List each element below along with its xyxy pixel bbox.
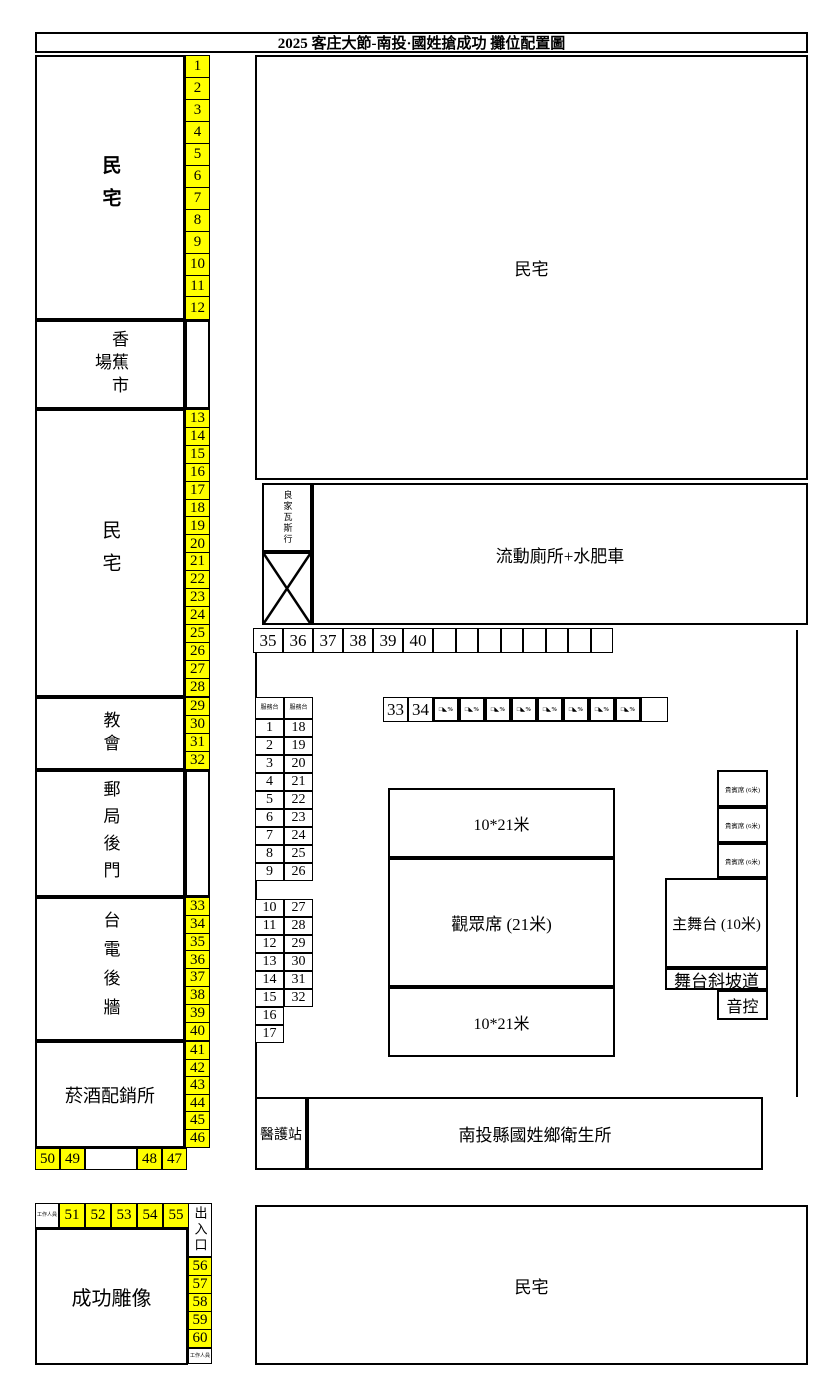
health-center: 南投縣國姓鄉衛生所 bbox=[307, 1097, 763, 1170]
booth-cell: 12 bbox=[185, 296, 210, 319]
area-banana-market-label: 香蕉市場 bbox=[93, 322, 127, 407]
booth-cell: 16 bbox=[185, 463, 210, 482]
stamped-cell: □◣% bbox=[563, 697, 589, 722]
service-cell: 2 bbox=[255, 737, 284, 755]
service-cell: 16 bbox=[255, 1007, 284, 1025]
booth-cell: 36 bbox=[185, 950, 210, 969]
area-gas-shop-label: 良家瓦斯行 bbox=[283, 490, 292, 545]
service-cell: 21 bbox=[284, 773, 313, 791]
service-cell: 17 bbox=[255, 1025, 284, 1043]
stamped-cell: □◣% bbox=[511, 697, 537, 722]
area-chenggong-statue: 成功雕像 bbox=[35, 1228, 188, 1365]
area-mobile-toilets: 流動廁所+水肥車 bbox=[312, 483, 808, 625]
booth-cell: 41 bbox=[185, 1041, 210, 1060]
booth-cell: 49 bbox=[60, 1148, 85, 1170]
service-cell: 27 bbox=[284, 899, 313, 917]
empty-cell bbox=[641, 697, 668, 722]
booth-cell: 34 bbox=[185, 915, 210, 934]
crossed-out-area bbox=[262, 552, 312, 625]
service-desk-row: 7 24 bbox=[255, 827, 315, 845]
booth-cell: 34 bbox=[408, 697, 433, 722]
booth-strip-41-46: 414243444546 bbox=[185, 1041, 210, 1148]
empty-cell bbox=[433, 628, 456, 653]
empty-strip-banana bbox=[185, 320, 210, 409]
empty-strip-post-office bbox=[185, 770, 210, 897]
booth-cell: 53 bbox=[111, 1203, 137, 1228]
service-cell: 14 bbox=[255, 971, 284, 989]
service-cell: 5 bbox=[255, 791, 284, 809]
service-cell: 26 bbox=[284, 863, 313, 881]
booth-cell: 19 bbox=[185, 516, 210, 535]
booth-cell: 27 bbox=[185, 660, 210, 679]
street-booth-row: 353637383940 bbox=[253, 628, 613, 653]
service-cell: 13 bbox=[255, 953, 284, 971]
road-edge-right bbox=[796, 630, 798, 1097]
service-cell: 6 bbox=[255, 809, 284, 827]
empty-cell bbox=[501, 628, 524, 653]
booth-cell: 35 bbox=[185, 933, 210, 952]
booth-cell: 59 bbox=[188, 1311, 212, 1330]
service-cell: 23 bbox=[284, 809, 313, 827]
vip-seat-3: 貴賓席 (6米) bbox=[717, 843, 768, 878]
booth-strip-33-40: 3334353637383940 bbox=[185, 897, 210, 1041]
service-cell: 31 bbox=[284, 971, 313, 989]
service-cell: 30 bbox=[284, 953, 313, 971]
stamped-cell: □◣% bbox=[537, 697, 563, 722]
service-desk-block-b: 10 27 11 28 12 29 13 30 bbox=[255, 899, 315, 1007]
service-desk-row: 1 18 bbox=[255, 719, 315, 737]
service-desk-block-singles: 16 17 bbox=[255, 1007, 315, 1043]
booth-cell: 40 bbox=[185, 1022, 210, 1041]
booth-cell: 39 bbox=[185, 1004, 210, 1023]
booth-cell: 11 bbox=[185, 275, 210, 298]
medical-station: 醫護站 bbox=[255, 1097, 307, 1170]
service-desk-row: 10 27 bbox=[255, 899, 315, 917]
service-cell: 12 bbox=[255, 935, 284, 953]
booth-cell: 20 bbox=[185, 534, 210, 553]
area-house-upper-left-label: 民宅 bbox=[101, 155, 120, 221]
stamped-cell: □◣% bbox=[459, 697, 485, 722]
booth-cell: 22 bbox=[185, 570, 210, 589]
booth-strip-13-28: 13141516171819202122232425262728 bbox=[185, 409, 210, 697]
booth-cell: 47 bbox=[162, 1148, 187, 1170]
entrance-exit-cell: 出入口 bbox=[188, 1203, 212, 1257]
area-church: 教會 bbox=[35, 697, 185, 770]
service-cell: 9 bbox=[255, 863, 284, 881]
booth-cell: 58 bbox=[188, 1293, 212, 1312]
area-house-mid-left: 民宅 bbox=[35, 409, 185, 697]
booth-cell: 37 bbox=[185, 968, 210, 987]
service-cell: 7 bbox=[255, 827, 284, 845]
booth-cell: 38 bbox=[185, 986, 210, 1005]
service-cell: 10 bbox=[255, 899, 284, 917]
booth-cell: 2 bbox=[185, 77, 210, 100]
booth-cell: 17 bbox=[185, 481, 210, 500]
empty-cell bbox=[478, 628, 501, 653]
main-stage: 主舞台 (10米) bbox=[665, 878, 768, 968]
booth-cell: 31 bbox=[185, 733, 210, 752]
page-title: 2025 客庄大節-南投·國姓搶成功 攤位配置圖 bbox=[35, 32, 808, 53]
empty-cell bbox=[591, 628, 614, 653]
service-cell: 22 bbox=[284, 791, 313, 809]
booth-cell: 36 bbox=[283, 628, 313, 653]
area-tobacco-liquor: 菸酒配銷所 bbox=[35, 1041, 185, 1148]
booth-cell: 8 bbox=[185, 209, 210, 232]
booth-cell: 24 bbox=[185, 606, 210, 625]
service-desk-gap bbox=[255, 881, 315, 899]
service-cell: 1 bbox=[255, 719, 284, 737]
area-house-mid-left-label: 民宅 bbox=[101, 520, 120, 586]
booth-cell: 48 bbox=[137, 1148, 162, 1170]
booth-cell: 25 bbox=[185, 624, 210, 643]
area-house-bottom-right: 民宅 bbox=[255, 1205, 808, 1365]
booth-cell: 5 bbox=[185, 143, 210, 166]
booth-cell: 43 bbox=[185, 1076, 210, 1095]
service-desk-row: 16 bbox=[255, 1007, 315, 1025]
booth-cell: 18 bbox=[185, 499, 210, 518]
booth-strip-56-60: 5657585960 bbox=[188, 1257, 212, 1348]
booth-cell: 39 bbox=[373, 628, 403, 653]
booth-cell: 21 bbox=[185, 552, 210, 571]
staff-cell-top: 工作人員 bbox=[35, 1203, 59, 1228]
area-post-office-back: 郵局後門 bbox=[35, 770, 185, 897]
zone-10x21-top: 10*21米 bbox=[388, 788, 615, 858]
area-post-office-back-label: 郵局後門 bbox=[102, 780, 119, 888]
booth-cell: 38 bbox=[343, 628, 373, 653]
service-cell: 19 bbox=[284, 737, 313, 755]
booth-cell: 29 bbox=[185, 697, 210, 716]
booth-row-47-50: 50 49 48 47 bbox=[35, 1148, 187, 1170]
service-desk-header: 服務台 bbox=[255, 697, 284, 719]
booth-cell: 57 bbox=[188, 1275, 212, 1294]
area-church-label: 教會 bbox=[102, 711, 119, 757]
service-cell: 25 bbox=[284, 845, 313, 863]
stamped-cell: □◣% bbox=[485, 697, 511, 722]
service-desk-row: 15 32 bbox=[255, 989, 315, 1007]
zone-audience: 觀眾席 (21米) bbox=[388, 858, 615, 987]
booth-cell: 60 bbox=[188, 1329, 212, 1348]
service-desk-row: 6 23 bbox=[255, 809, 315, 827]
service-cell: 15 bbox=[255, 989, 284, 1007]
service-desk-row: 2 19 bbox=[255, 737, 315, 755]
booth-cell: 35 bbox=[253, 628, 283, 653]
booth-cell: 42 bbox=[185, 1059, 210, 1078]
area-gas-shop: 良家瓦斯行 bbox=[262, 483, 312, 552]
booth-cell: 15 bbox=[185, 445, 210, 464]
booth-cell: 26 bbox=[185, 642, 210, 661]
booth-cell: 56 bbox=[188, 1257, 212, 1276]
vip-seat-1: 貴賓席 (6米) bbox=[717, 770, 768, 807]
booth-strip-1-12: 123456789101112 bbox=[185, 55, 210, 320]
service-desk-row: 4 21 bbox=[255, 773, 315, 791]
sound-control: 音控 bbox=[717, 990, 768, 1020]
service-desk-row: 8 25 bbox=[255, 845, 315, 863]
staff-cell-bottom: 工作人員 bbox=[188, 1348, 212, 1364]
booth-cell: 51 bbox=[59, 1203, 85, 1228]
service-desk-row: 3 20 bbox=[255, 755, 315, 773]
empty-cell bbox=[523, 628, 546, 653]
vip-seat-2: 貴賓席 (6米) bbox=[717, 807, 768, 843]
booth-cell: 14 bbox=[185, 427, 210, 446]
booth-strip-29-32: 29303132 bbox=[185, 697, 210, 770]
service-cell: 20 bbox=[284, 755, 313, 773]
service-cell: 32 bbox=[284, 989, 313, 1007]
booth-cell: 33 bbox=[383, 697, 408, 722]
booth-cell: 32 bbox=[185, 751, 210, 770]
booth-cell: 40 bbox=[403, 628, 433, 653]
service-desk-row: 5 22 bbox=[255, 791, 315, 809]
service-cell: 8 bbox=[255, 845, 284, 863]
booth-row-51-55: 5152535455 bbox=[59, 1203, 189, 1228]
booth-cell: 1 bbox=[185, 55, 210, 78]
empty-cell bbox=[546, 628, 569, 653]
booth-cell: 3 bbox=[185, 99, 210, 122]
cross-x-icon bbox=[264, 554, 310, 623]
area-house-upper-right: 民宅 bbox=[255, 55, 808, 480]
area-banana-market: 香蕉市場 bbox=[35, 320, 185, 409]
booth-layout-diagram: 2025 客庄大節-南投·國姓搶成功 攤位配置圖 民宅 香蕉市場 民宅 教會 郵… bbox=[0, 0, 835, 1399]
booth-cell: 37 bbox=[313, 628, 343, 653]
service-cell: 11 bbox=[255, 917, 284, 935]
booth-cell: 54 bbox=[137, 1203, 163, 1228]
booth-cell: 55 bbox=[163, 1203, 189, 1228]
service-desk-row: 9 26 bbox=[255, 863, 315, 881]
front-booth-row: 33 34 □◣%□◣%□◣%□◣%□◣%□◣%□◣%□◣% bbox=[383, 697, 668, 722]
service-desk-block-a: 1 18 2 19 3 20 4 21 bbox=[255, 719, 315, 881]
booth-cell: 7 bbox=[185, 187, 210, 210]
service-cell: 4 bbox=[255, 773, 284, 791]
booth-cell: 4 bbox=[185, 121, 210, 144]
booth-cell: 50 bbox=[35, 1148, 60, 1170]
area-house-upper-left: 民宅 bbox=[35, 55, 185, 320]
booth-cell: 10 bbox=[185, 253, 210, 276]
service-desk-row: 12 29 bbox=[255, 935, 315, 953]
booth-cell: 46 bbox=[185, 1129, 210, 1148]
booth-cell: 52 bbox=[85, 1203, 111, 1228]
booth-cell: 23 bbox=[185, 588, 210, 607]
booth-cell: 6 bbox=[185, 165, 210, 188]
entrance-exit-label: 出入口 bbox=[194, 1206, 207, 1254]
service-desk-row: 11 28 bbox=[255, 917, 315, 935]
zone-10x21-bottom: 10*21米 bbox=[388, 987, 615, 1057]
booth-cell: 33 bbox=[185, 897, 210, 916]
service-cell: 24 bbox=[284, 827, 313, 845]
booth-cell: 9 bbox=[185, 231, 210, 254]
stamped-cell: □◣% bbox=[589, 697, 615, 722]
booth-cell: 28 bbox=[185, 678, 210, 697]
booth-cell: 45 bbox=[185, 1111, 210, 1130]
area-taipower-wall-label: 台電後牆 bbox=[102, 911, 119, 1027]
stage-ramp: 舞台斜坡道 bbox=[665, 968, 768, 990]
service-cell: 29 bbox=[284, 935, 313, 953]
empty-cell bbox=[85, 1148, 137, 1170]
service-desk-table: 服務台 服務台 1 18 2 19 3 20 bbox=[255, 697, 315, 1043]
service-cell: 28 bbox=[284, 917, 313, 935]
booth-cell: 13 bbox=[185, 409, 210, 428]
empty-cell bbox=[456, 628, 479, 653]
service-desk-header: 服務台 bbox=[284, 697, 313, 719]
area-taipower-wall: 台電後牆 bbox=[35, 897, 185, 1041]
booth-cell: 30 bbox=[185, 715, 210, 734]
service-desk-header-row: 服務台 服務台 bbox=[255, 697, 315, 719]
stamped-cell: □◣% bbox=[615, 697, 641, 722]
booth-cell: 44 bbox=[185, 1094, 210, 1113]
empty-cell bbox=[568, 628, 591, 653]
service-desk-row: 13 30 bbox=[255, 953, 315, 971]
stamped-cell: □◣% bbox=[433, 697, 459, 722]
service-desk-row: 14 31 bbox=[255, 971, 315, 989]
service-cell: 18 bbox=[284, 719, 313, 737]
service-cell: 3 bbox=[255, 755, 284, 773]
service-desk-row: 17 bbox=[255, 1025, 315, 1043]
